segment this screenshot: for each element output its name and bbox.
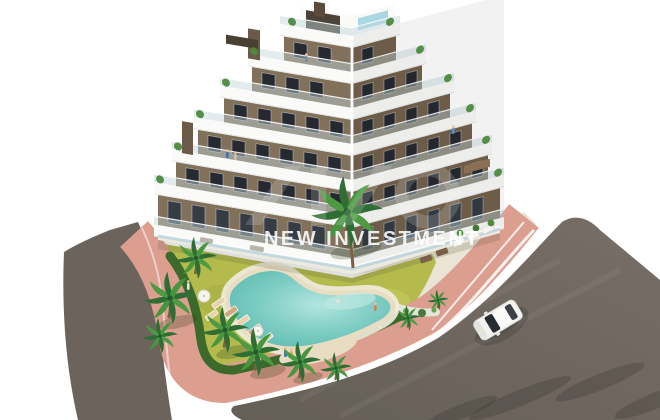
watermark-text: NEW INVESTMENT <box>264 228 480 250</box>
render-canvas: NEW INVESTMENT <box>0 0 660 420</box>
aerial-render: NEW INVESTMENT <box>0 0 660 420</box>
roof-chimney <box>314 2 325 18</box>
chimney-left-lower <box>182 121 193 155</box>
